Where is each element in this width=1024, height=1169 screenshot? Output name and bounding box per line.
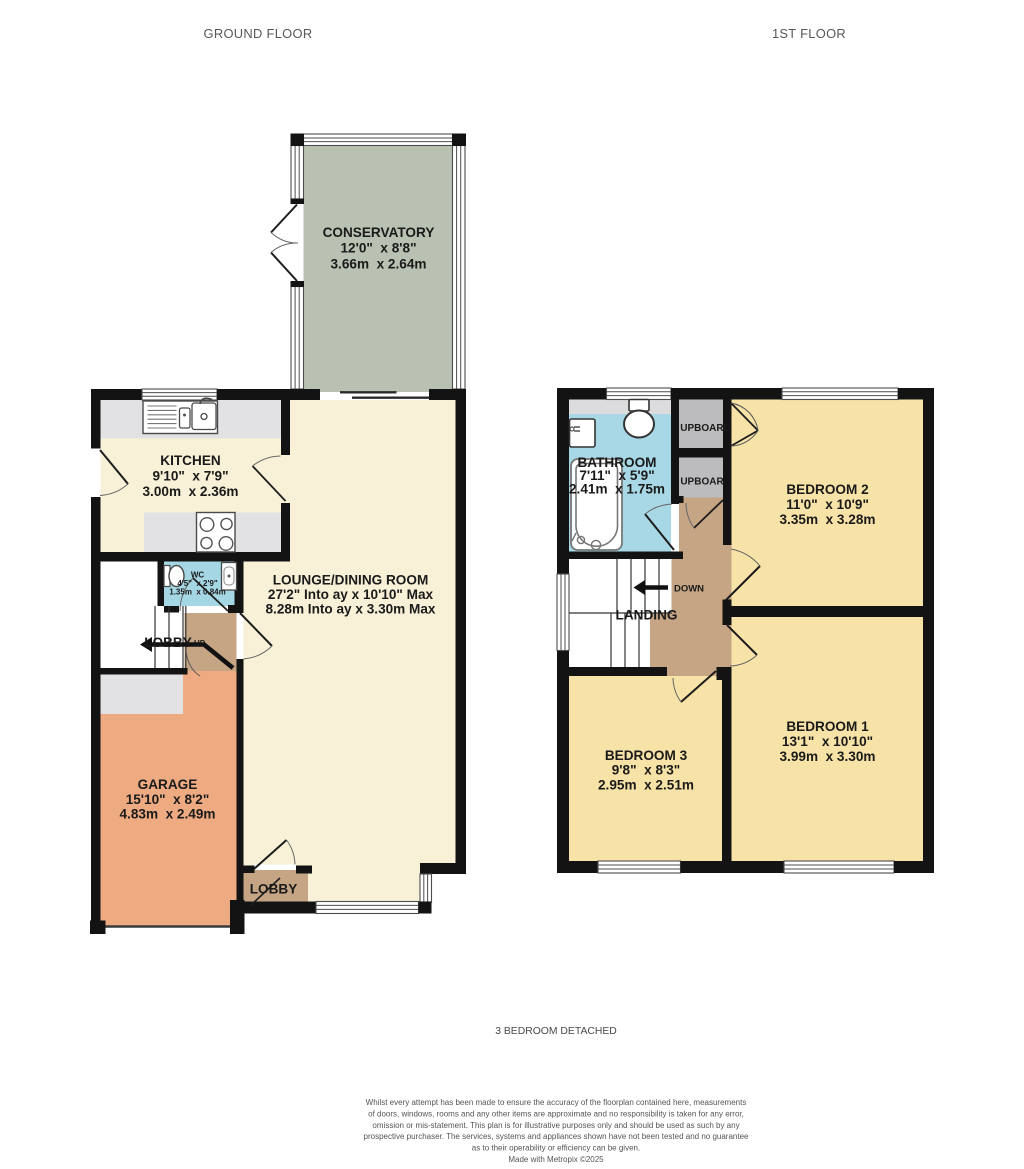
svg-text:BEDROOM 3: BEDROOM 3	[605, 748, 688, 763]
svg-text:3.66m x 2.64m: 3.66m x 2.64m	[331, 256, 427, 271]
svg-text:BEDROOM 1: BEDROOM 1	[786, 719, 869, 734]
svg-text:DOWN: DOWN	[674, 584, 704, 595]
svg-text:UP: UP	[194, 639, 206, 648]
svg-text:9'10" x 7'9": 9'10" x 7'9"	[152, 469, 228, 484]
svg-text:4.83m x 2.49m: 4.83m x 2.49m	[120, 807, 216, 822]
svg-text:GARAGE: GARAGE	[138, 777, 198, 792]
svg-text:27'2" Into ay x 10'10" Max: 27'2" Into ay x 10'10" Max	[268, 587, 434, 602]
svg-text:12'0" x 8'8": 12'0" x 8'8"	[340, 241, 416, 256]
svg-text:9'8" x 8'3": 9'8" x 8'3"	[612, 763, 681, 778]
svg-text:as to their operability or eff: as to their operability or efficiency ca…	[472, 1144, 640, 1153]
svg-text:13'1" x 10'10": 13'1" x 10'10"	[782, 734, 873, 749]
svg-text:LOUNGE/DINING ROOM: LOUNGE/DINING ROOM	[273, 573, 429, 588]
svg-text:omission or mis-statement. Thi: omission or mis-statement. This plan is …	[372, 1121, 739, 1130]
svg-text:15'10" x 8'2": 15'10" x 8'2"	[126, 792, 210, 807]
svg-text:CONSERVATORY: CONSERVATORY	[323, 225, 435, 240]
svg-text:LANDING: LANDING	[616, 608, 678, 623]
svg-text:2.95m x 2.51m: 2.95m x 2.51m	[598, 778, 694, 793]
svg-text:prospective purchaser. The ser: prospective purchaser. The services, sys…	[364, 1132, 750, 1141]
svg-text:LOBBY: LOBBY	[250, 882, 298, 897]
svg-text:3.00m x 2.36m: 3.00m x 2.36m	[143, 484, 239, 499]
svg-text:3.99m x 3.30m: 3.99m x 3.30m	[780, 749, 876, 764]
svg-text:BEDROOM 2: BEDROOM 2	[786, 482, 869, 497]
svg-text:KITCHEN: KITCHEN	[160, 453, 220, 468]
svg-text:LOBBY: LOBBY	[144, 635, 192, 650]
svg-text:Made with Metropix ©2025: Made with Metropix ©2025	[508, 1155, 604, 1164]
svg-text:GROUND FLOOR: GROUND FLOOR	[204, 26, 313, 41]
svg-text:3.35m x 3.28m: 3.35m x 3.28m	[780, 512, 876, 527]
svg-text:Whilst every attempt has been: Whilst every attempt has been made to en…	[366, 1098, 747, 1107]
svg-text:UPBOAR: UPBOAR	[680, 477, 724, 488]
svg-text:1ST FLOOR: 1ST FLOOR	[772, 26, 846, 41]
svg-text:11'0" x 10'9": 11'0" x 10'9"	[786, 497, 869, 512]
svg-text:3 BEDROOM DETACHED: 3 BEDROOM DETACHED	[495, 1026, 617, 1037]
svg-text:1.35m x 0.84m: 1.35m x 0.84m	[169, 588, 225, 597]
svg-text:of doors, windows, rooms and a: of doors, windows, rooms and any other i…	[368, 1109, 744, 1118]
svg-text:8.28m Into ay x 3.30m Max: 8.28m Into ay x 3.30m Max	[265, 602, 435, 617]
svg-text:UPBOARD: UPBOARD	[680, 423, 731, 434]
svg-text:2.41m x 1.75m: 2.41m x 1.75m	[569, 482, 665, 497]
